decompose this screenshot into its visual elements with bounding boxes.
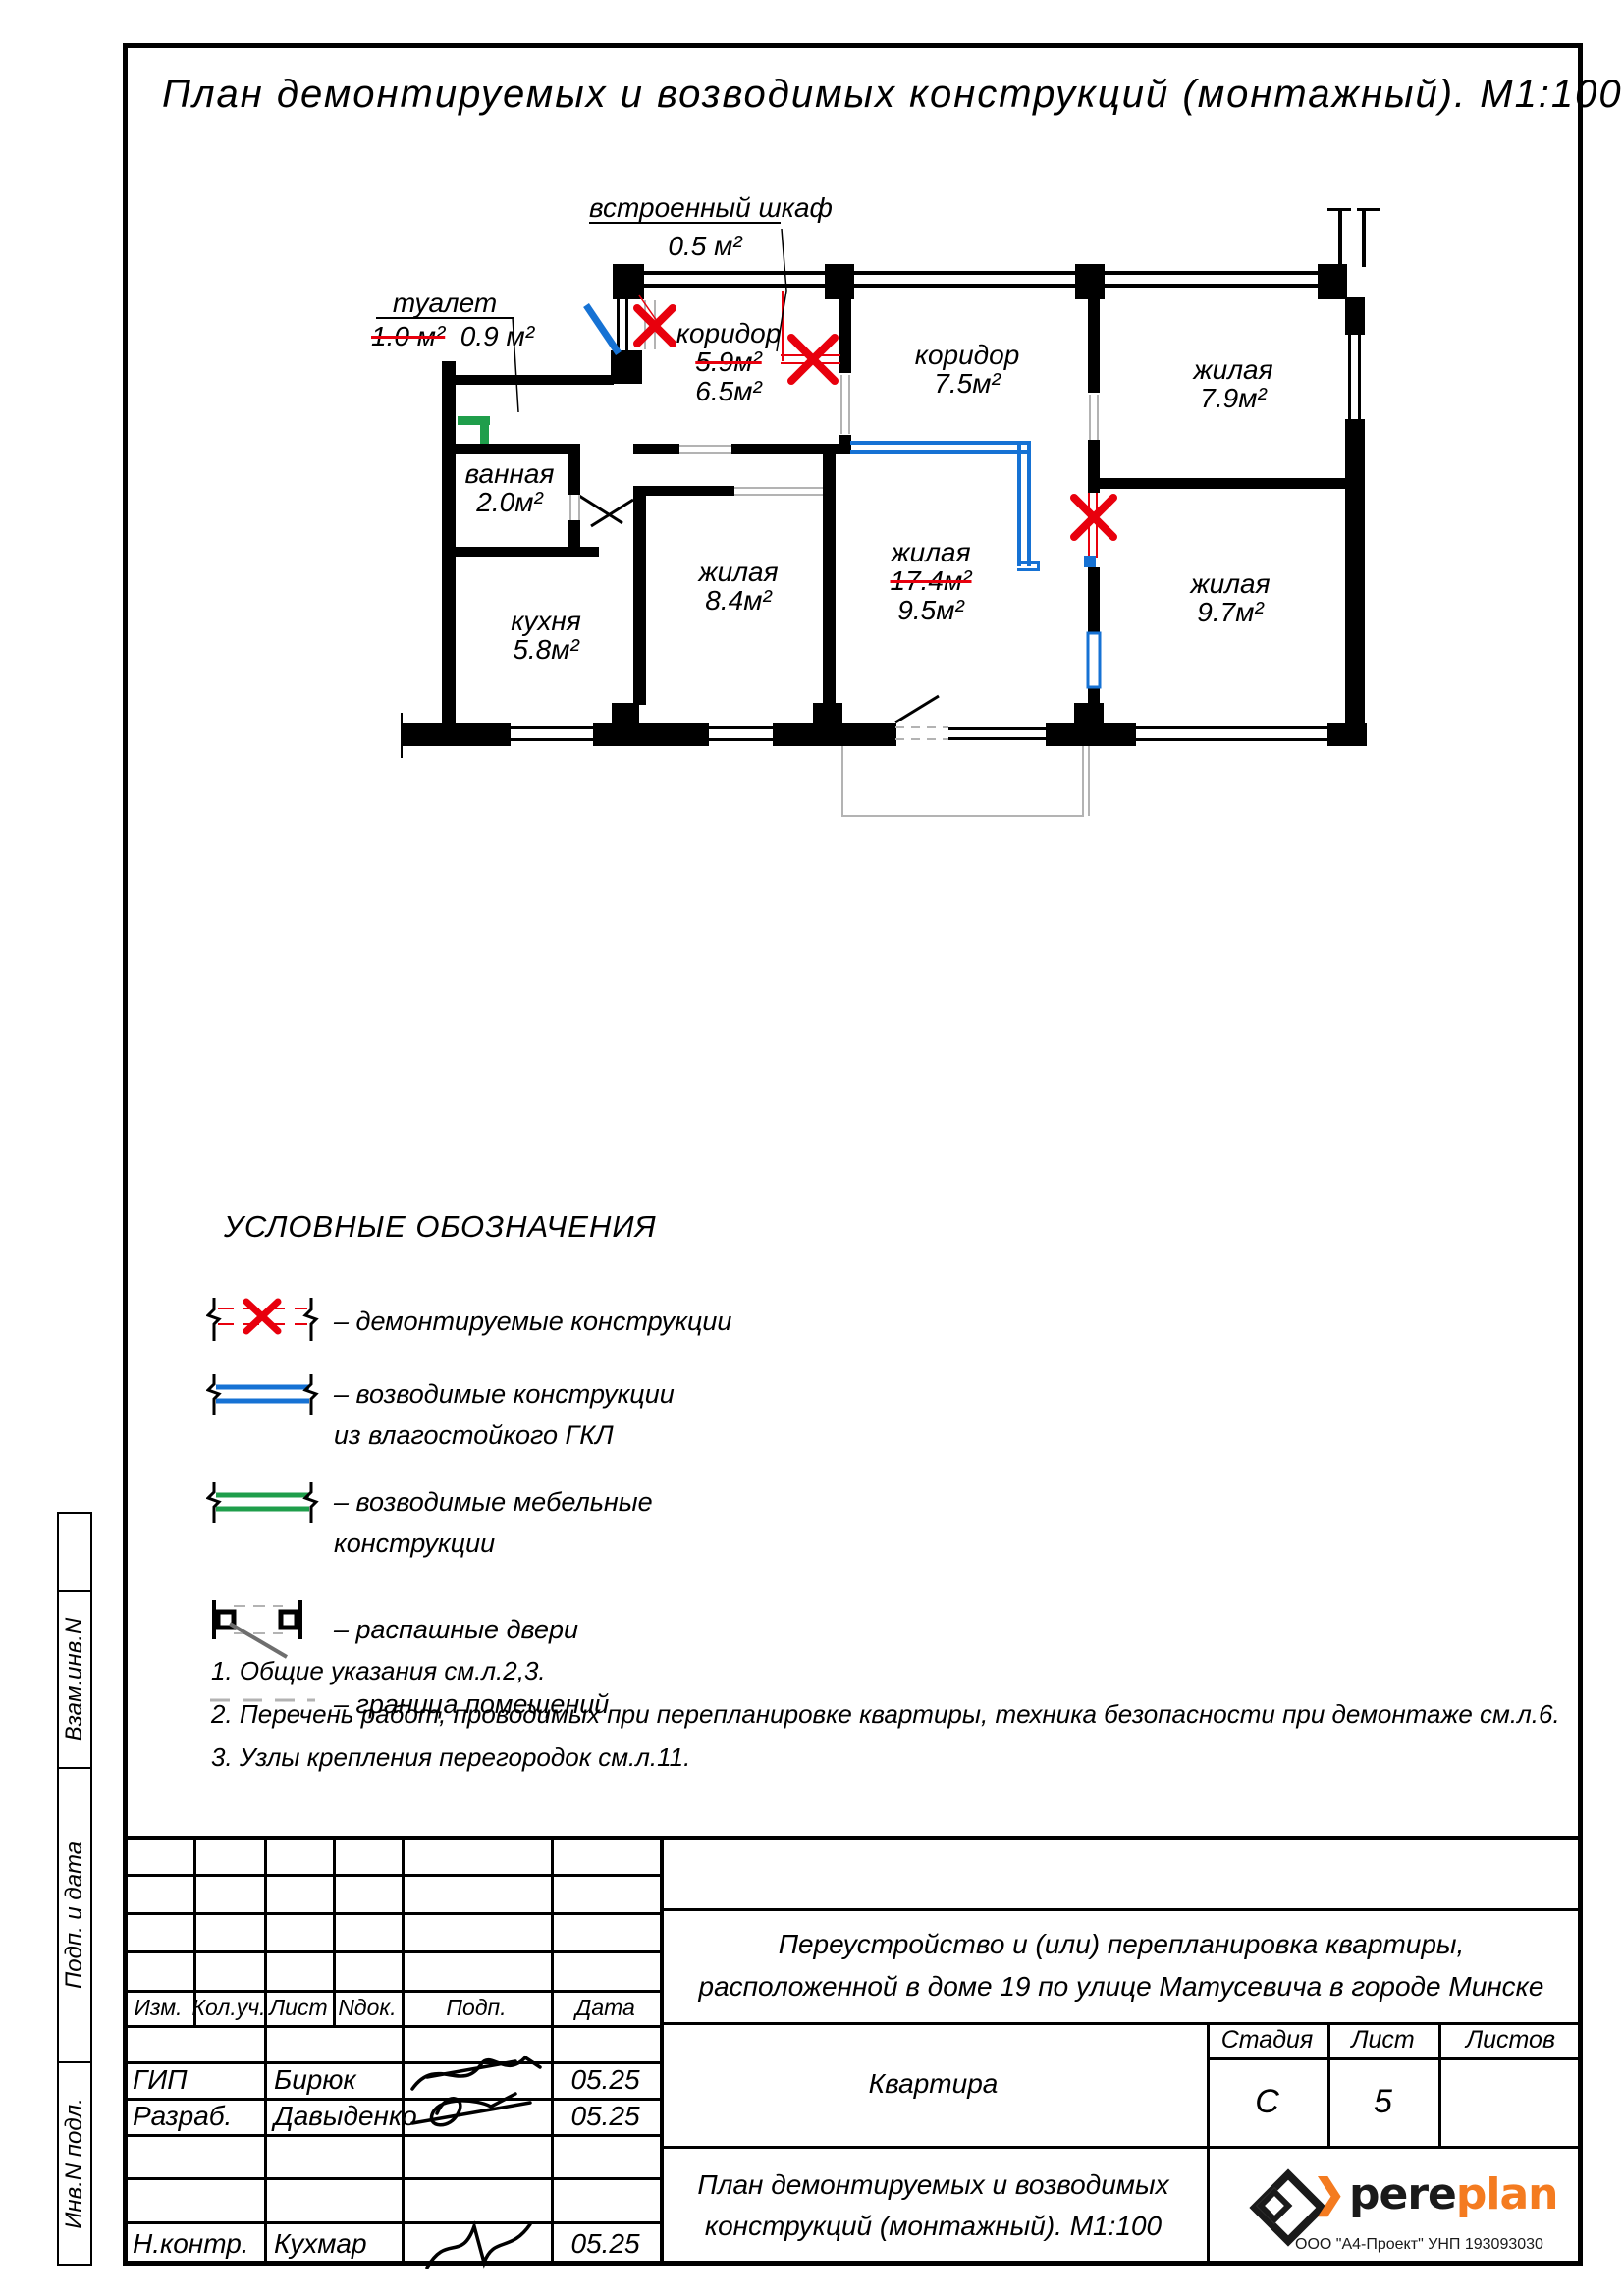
signature-razrab xyxy=(407,2089,545,2138)
legend-doors-label: – распашные двери xyxy=(334,1610,578,1651)
tb-sheet-value: 5 xyxy=(1327,2057,1438,2146)
tb-col-data: Дата xyxy=(551,1990,660,2025)
room-area-closet: 0.5 м² xyxy=(668,232,741,260)
tb-date-razrab: 05.25 xyxy=(551,2098,660,2134)
title-block: Изм. Кол.уч. Лист Nдок. Подп. Дата ГИП Б… xyxy=(123,1836,1583,2266)
side-label-inv: Инв.N подл. xyxy=(57,2061,92,2266)
pereplan-wordmark: pereplan xyxy=(1349,2169,1557,2219)
furniture-construction xyxy=(458,416,490,444)
legend-furniture-icon xyxy=(206,1480,319,1525)
tb-date-gip: 05.25 xyxy=(551,2061,660,2098)
note-1: 1. Общие указания см.л.2,3. xyxy=(211,1651,546,1690)
tb-stage-value: С xyxy=(1207,2057,1327,2146)
new-door-line xyxy=(586,305,619,353)
side-label-vzam: Взам.инв.N xyxy=(57,1590,92,1769)
note-2: 2. Перечень работ, проводимых при перепл… xyxy=(211,1694,1560,1734)
drawing-sheet: План демонтируемых и возводимых конструк… xyxy=(0,0,1623,2296)
tb-sheets-label: Листов xyxy=(1438,2022,1583,2057)
tb-sheets-value xyxy=(1438,2057,1583,2146)
room-label-closet: встроенный шкаф xyxy=(589,193,781,224)
room-label-living-top-right: жилая7.9м² xyxy=(1193,355,1272,413)
tb-project: Переустройство и (или) перепланировка кв… xyxy=(660,1908,1583,2022)
signature-nkontr xyxy=(417,2218,545,2272)
pereplan-logomark-icon xyxy=(1248,2167,1317,2236)
room-area-toilet: 1.0 м² 0.9 м² xyxy=(371,322,534,350)
note-3: 3. Узлы крепления перегородок см.л.11. xyxy=(211,1737,690,1777)
tb-name-razrab: Давыденко xyxy=(274,2098,402,2134)
new-gkl-wall-lower xyxy=(1088,633,1100,687)
tb-col-list: Лист xyxy=(264,1990,333,2025)
tb-name-nkontr: Кухмар xyxy=(274,2221,402,2266)
room-label-corridor-left: коридор 5.9м² 6.5м² xyxy=(676,319,782,405)
tb-col-izm: Изм. xyxy=(123,1990,193,2025)
tb-doc-title: План демонтируемых и возводимых конструк… xyxy=(660,2146,1207,2266)
tb-object: Квартира xyxy=(660,2022,1207,2146)
legend-demolished-icon xyxy=(206,1294,319,1345)
legend-demolished-label: – демонтируемые конструкции xyxy=(334,1302,731,1343)
room-label-bathroom: ванная2.0м² xyxy=(465,459,555,517)
legend-title: УСЛОВНЫЕ ОБОЗНАЧЕНИЯ xyxy=(224,1209,657,1245)
tb-col-podp: Подп. xyxy=(402,1990,551,2025)
tb-col-ndok: Nдок. xyxy=(333,1990,402,2025)
floor-plan xyxy=(0,0,1623,883)
room-label-living-center: жилая 17.4м² 9.5м² xyxy=(890,538,971,624)
pereplan-logo: ❯ pereplan ООО "А4-Проект" УНП 193093030 xyxy=(1207,2146,1583,2266)
tb-role-razrab: Разраб. xyxy=(133,2098,264,2134)
room-label-corridor-right: коридор7.5м² xyxy=(915,341,1020,399)
room-label-kitchen: кухня5.8м² xyxy=(511,607,581,665)
tb-role-nkontr: Н.контр. xyxy=(133,2221,264,2266)
room-label-toilet: туалет xyxy=(376,289,514,319)
pereplan-chevron-icon: ❯ xyxy=(1313,2171,1346,2216)
tb-role-gip: ГИП xyxy=(133,2061,264,2098)
room-label-living-left: жилая8.4м² xyxy=(698,558,778,615)
legend-gkl-icon xyxy=(206,1372,319,1417)
room-label-living-bottom-right: жилая9.7м² xyxy=(1190,569,1270,627)
tb-date-nkontr: 05.25 xyxy=(551,2221,660,2266)
tb-sheet-label: Лист xyxy=(1327,2022,1438,2057)
tb-stage-label: Стадия xyxy=(1207,2022,1327,2057)
legend-gkl-label: – возводимые конструкциииз влагостойкого… xyxy=(334,1374,675,1457)
pereplan-company-info: ООО "А4-Проект" УНП 193093030 xyxy=(1295,2236,1543,2254)
legend-furniture-label: – возводимые мебельныеконструкции xyxy=(334,1482,653,1565)
side-cell-empty xyxy=(57,1512,92,1592)
tb-name-gip: Бирюк xyxy=(274,2061,402,2098)
tb-col-koluch: Кол.уч. xyxy=(193,1990,264,2025)
new-gkl-walls xyxy=(850,441,1096,571)
side-label-podp: Подп. и дата xyxy=(57,1767,92,2063)
